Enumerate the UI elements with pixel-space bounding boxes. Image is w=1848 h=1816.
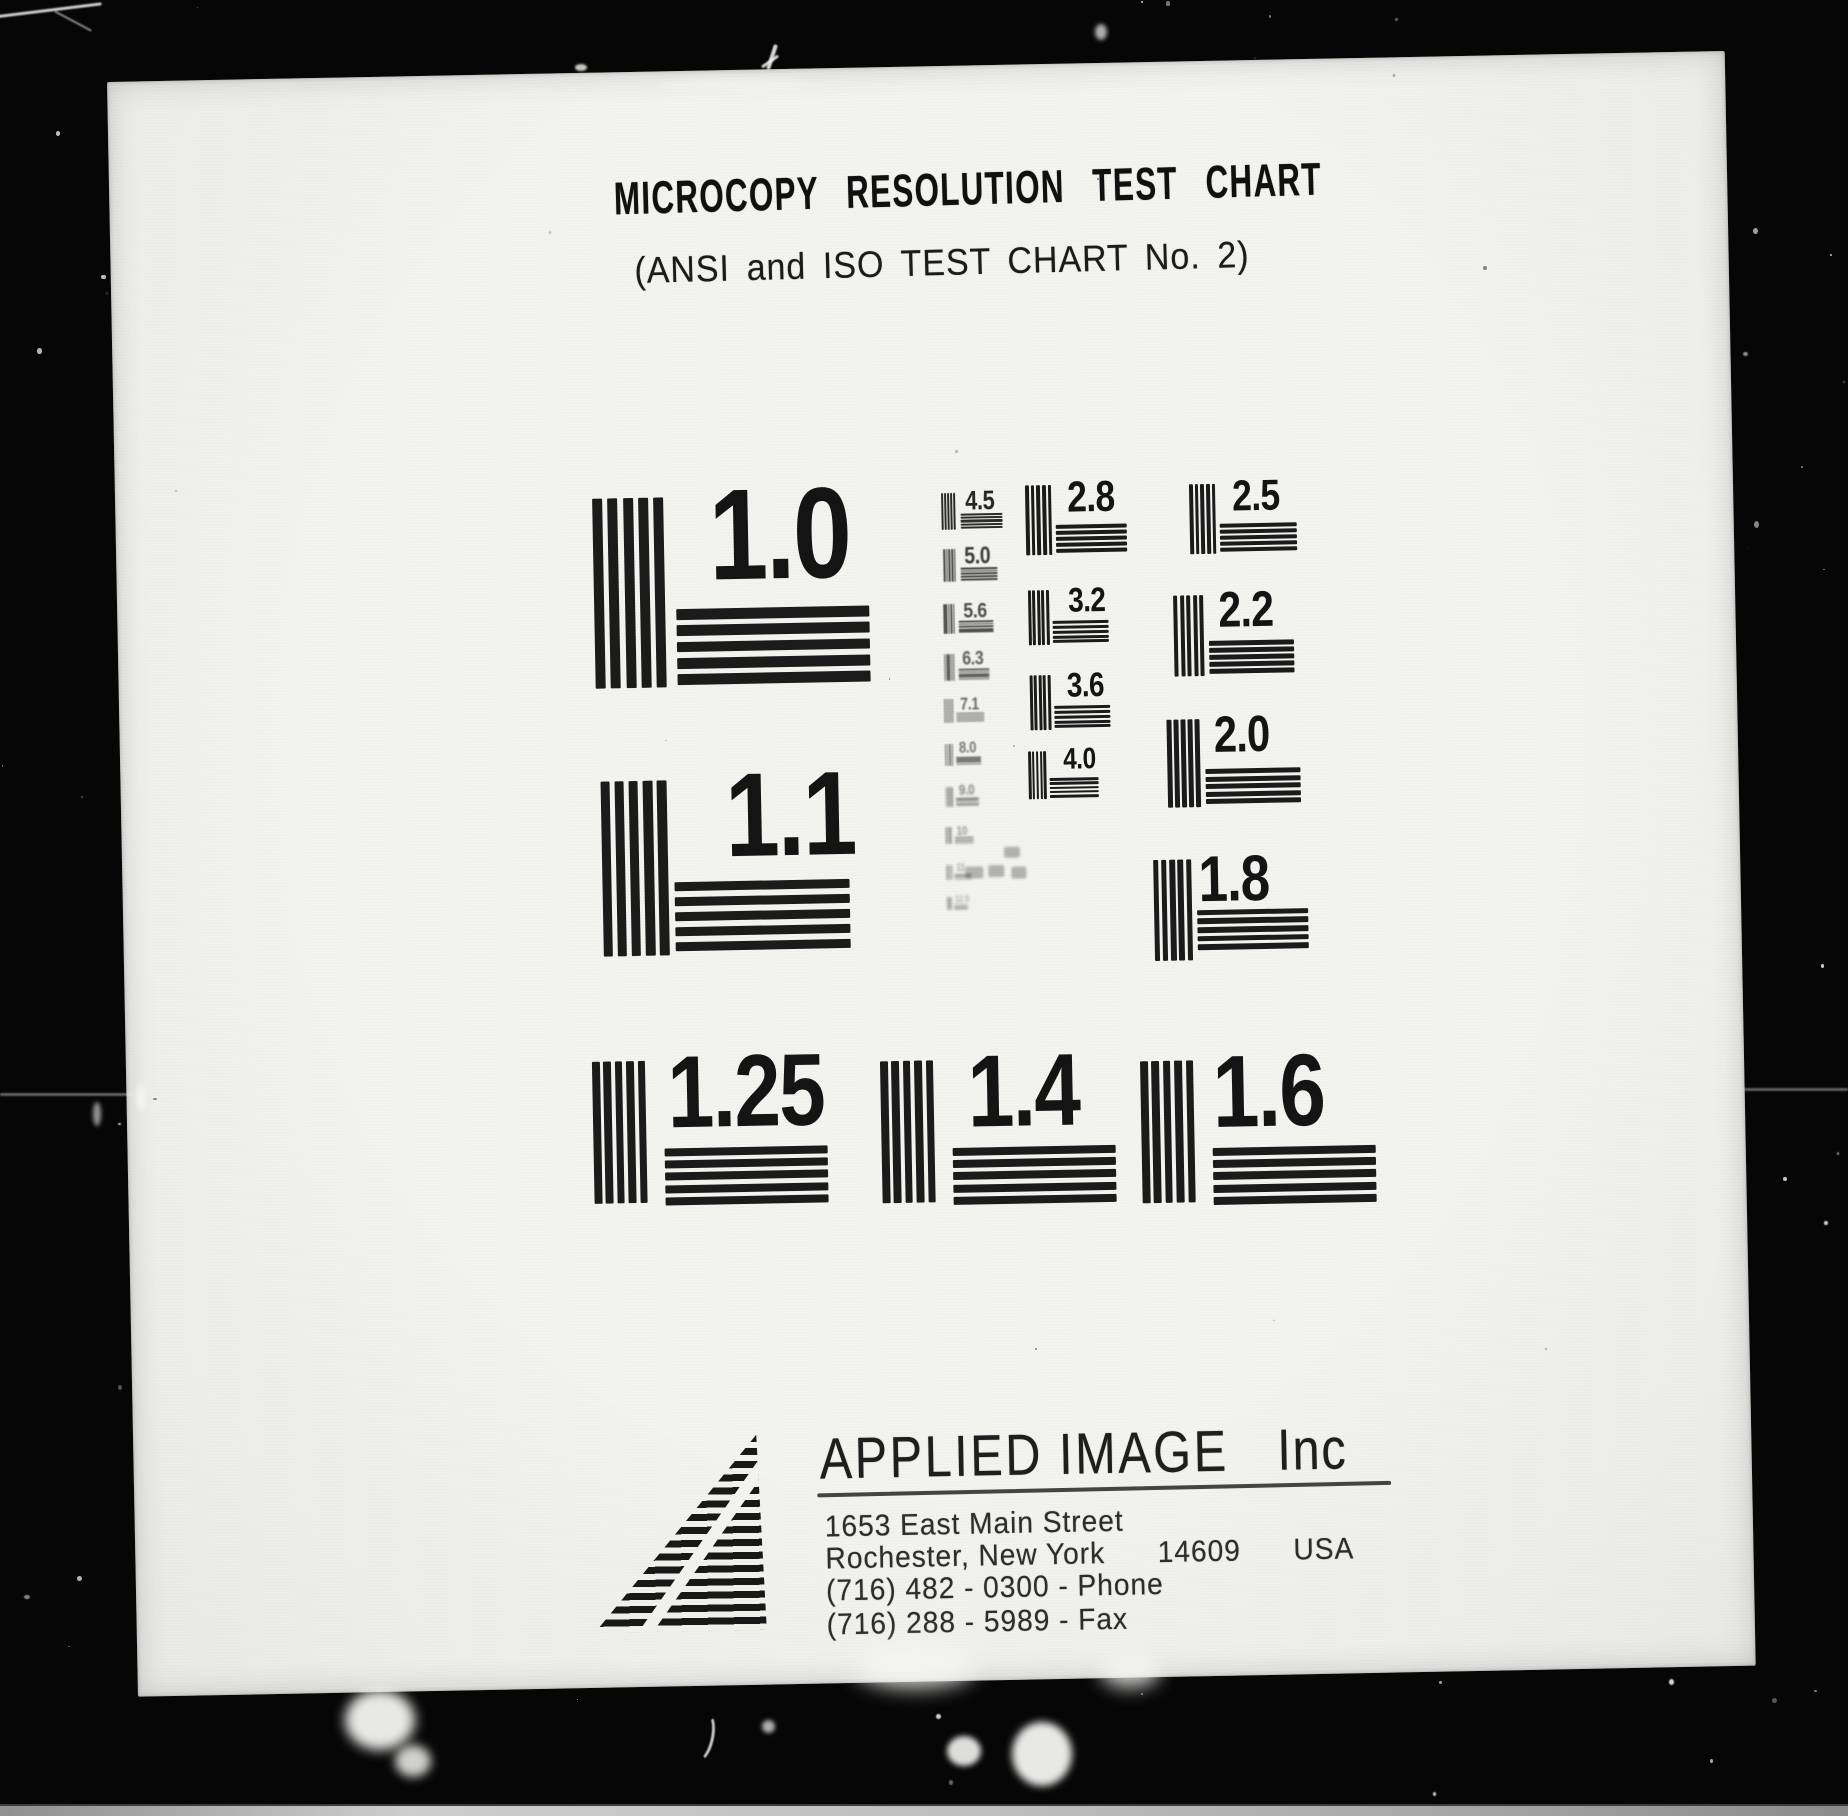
- horizontal-bars: [1052, 620, 1109, 643]
- vertical-bars: [946, 787, 954, 807]
- test-patch-1.1: 1.1: [601, 780, 670, 956]
- scan-blotch: [575, 64, 587, 71]
- vertical-bars: [1173, 595, 1205, 677]
- patch-value-label: 2.8: [1067, 476, 1115, 520]
- dust-speck: [56, 131, 60, 136]
- patch-value-label: 11: [956, 863, 965, 874]
- test-patch-11: 11: [946, 865, 952, 880]
- test-patch-2.0: 2.0: [1166, 719, 1201, 808]
- scratch-arc-artifact: [687, 1710, 719, 1763]
- dust-speck: [1824, 1221, 1827, 1225]
- patch-value-label: 7.1: [960, 695, 979, 713]
- dust-speck: [24, 1595, 29, 1599]
- dust-speck: [936, 1714, 941, 1719]
- scan-blotch: [93, 1102, 101, 1126]
- paper-speck: [955, 450, 958, 453]
- chart-title: MICROCOPY RESOLUTION TEST CHART: [447, 156, 1448, 221]
- vertical-bars: [880, 1060, 936, 1203]
- patch-value-label: 3.2: [1068, 582, 1106, 617]
- test-patch-9.0: 9.0: [946, 787, 954, 807]
- faint-micro-pattern: [1011, 866, 1026, 878]
- scan-blotch: [855, 1646, 975, 1688]
- vertical-bars: [1189, 484, 1217, 554]
- dust-speck: [1710, 1759, 1713, 1763]
- dust-speck: [949, 1780, 953, 1785]
- patch-value-label: 1.6: [1212, 1038, 1325, 1142]
- scratch-line-artifact: [0, 2, 102, 18]
- test-patch-1.8: 1.8: [1153, 859, 1193, 961]
- horizontal-bars: [956, 712, 984, 722]
- patch-value-label: 1.0: [707, 469, 850, 601]
- vertical-bars: [945, 827, 952, 844]
- patch-value-label: 3.6: [1066, 668, 1104, 703]
- scan-blotch: [947, 1736, 981, 1766]
- vertical-bars: [943, 549, 956, 582]
- dust-speck: [1269, 15, 1271, 17]
- dust-speck: [1801, 466, 1803, 468]
- company-suffix-text: Inc: [1277, 1416, 1348, 1482]
- dust-speck: [1669, 1679, 1674, 1685]
- dust-speck: [1843, 381, 1845, 384]
- test-patch-12.5: 12.5: [947, 897, 952, 910]
- resolution-patch-array: 1.01.11.251.41.64.55.05.66.37.18.09.0101…: [107, 51, 1725, 82]
- horizontal-bars: [956, 798, 979, 806]
- dust-speck: [1823, 569, 1825, 570]
- horizontal-bars: [1054, 705, 1111, 728]
- test-patch-3.6: 3.6: [1030, 675, 1052, 730]
- dust-speck: [37, 348, 41, 353]
- test-patch-1.25: 1.25: [592, 1061, 648, 1204]
- vertical-bars: [945, 744, 954, 766]
- scratch-line-artifact: [0, 1093, 132, 1096]
- test-patch-1.0: 1.0: [592, 497, 667, 688]
- patch-value-label: 12.5: [955, 895, 969, 905]
- test-patch-4.5: 4.5: [941, 493, 956, 530]
- horizontal-bars: [953, 904, 968, 909]
- test-patch-7.1: 7.1: [944, 699, 953, 723]
- dust-speck: [77, 1576, 82, 1581]
- applied-image-logo-triangle: [591, 1435, 767, 1633]
- faint-micro-pattern: [1004, 847, 1020, 858]
- faint-micro-pattern: [965, 866, 983, 878]
- dust-speck: [1141, 1693, 1143, 1695]
- vertical-bars: [1153, 859, 1193, 961]
- phone-line: (716) 482 - 0300 - Phone: [826, 1568, 1164, 1607]
- vertical-bars: [592, 1061, 648, 1204]
- patch-value-label: 6.3: [962, 650, 984, 670]
- test-patch-8.0: 8.0: [945, 744, 954, 766]
- horizontal-bars: [1198, 908, 1309, 950]
- patch-value-label: 8.0: [959, 740, 977, 756]
- scan-edge-strip: [0, 1804, 1848, 1816]
- vertical-bars: [947, 897, 952, 910]
- dust-speck: [101, 275, 105, 280]
- dust-speck: [1166, 1, 1170, 5]
- logo-diagonal-slash: [637, 1430, 790, 1642]
- horizontal-bars: [1220, 522, 1298, 551]
- scratch-line-artifact: [54, 10, 92, 31]
- dust-speck: [118, 1385, 122, 1390]
- horizontal-bars: [1056, 523, 1128, 552]
- vertical-bars: [943, 604, 955, 634]
- company-name: APPLIED IMAGEInc: [819, 1420, 1348, 1488]
- dust-speck: [81, 796, 82, 798]
- horizontal-bars: [676, 606, 871, 686]
- scanned-microfilm-frame: MICROCOPY RESOLUTION TEST CHART (ANSI an…: [0, 0, 1848, 1816]
- vertical-bars: [1025, 485, 1053, 555]
- patch-value-label: 9.0: [959, 784, 975, 799]
- test-patch-5.0: 5.0: [943, 549, 956, 582]
- faint-micro-pattern: [988, 865, 1004, 877]
- horizontal-bars: [960, 567, 998, 581]
- test-patch-1.4: 1.4: [880, 1060, 936, 1203]
- patch-value-label: 4.5: [965, 487, 995, 514]
- horizontal-bars: [674, 878, 850, 951]
- horizontal-bars: [960, 513, 1003, 529]
- dust-speck: [1743, 352, 1748, 356]
- dust-speck: [68, 1646, 70, 1648]
- scratch-line-artifact: [1744, 1088, 1848, 1091]
- dust-speck: [1395, 18, 1398, 22]
- dust-speck: [1141, 1, 1143, 4]
- dust-speck: [197, 7, 198, 8]
- patch-value-label: 10: [956, 824, 967, 836]
- patch-value-label: 1.25: [667, 1038, 825, 1143]
- dust-speck: [2, 765, 3, 767]
- horizontal-bars: [1209, 639, 1295, 673]
- vertical-bars: [941, 493, 956, 530]
- horizontal-bars: [958, 669, 989, 680]
- dust-speck: [1772, 1698, 1777, 1703]
- patch-value-label: 1.8: [1198, 846, 1270, 912]
- horizontal-bars: [956, 756, 981, 765]
- dust-speck: [1433, 1792, 1437, 1796]
- dust-speck: [1837, 1152, 1839, 1155]
- patch-value-label: 2.0: [1213, 708, 1270, 760]
- vertical-bars: [944, 654, 955, 681]
- dust-speck: [1814, 1690, 1816, 1692]
- paper-speck: [1483, 266, 1486, 270]
- test-chart-page: MICROCOPY RESOLUTION TEST CHART (ANSI an…: [107, 51, 1756, 1697]
- dust-speck: [1753, 228, 1758, 234]
- fax-line: (716) 288 - 5989 - Fax: [826, 1603, 1128, 1642]
- vertical-bars: [1028, 751, 1047, 799]
- chart-subtitle-text: (ANSI and ISO TEST CHART No. 2): [634, 236, 1250, 289]
- chart-title-text: MICROCOPY RESOLUTION TEST CHART: [613, 156, 1322, 222]
- horizontal-bars: [1049, 777, 1098, 797]
- dust-speck: [118, 1123, 121, 1126]
- horizontal-bars: [953, 1145, 1117, 1205]
- patch-value-label: 5.6: [963, 599, 987, 621]
- paper-speck: [1035, 1348, 1037, 1350]
- scan-blotch: [1012, 1722, 1072, 1786]
- patch-value-label: 4.0: [1063, 745, 1096, 775]
- test-patch-1.6: 1.6: [1140, 1060, 1196, 1203]
- patch-value-label: 2.5: [1231, 474, 1279, 518]
- horizontal-bars: [954, 836, 974, 843]
- patch-value-label: 1.1: [724, 754, 856, 875]
- company-name-text: APPLIED IMAGE: [819, 1419, 1229, 1492]
- dust-speck: [1783, 1177, 1787, 1182]
- vertical-bars: [601, 780, 670, 956]
- scan-blotch: [1095, 24, 1107, 40]
- patch-value-label: 2.2: [1218, 584, 1274, 635]
- paper-speck: [1031, 637, 1034, 640]
- test-patch-2.5: 2.5: [1189, 484, 1217, 554]
- test-patch-5.6: 5.6: [943, 604, 955, 634]
- scan-blotch: [136, 1084, 146, 1111]
- horizontal-bars: [959, 620, 994, 633]
- test-patch-2.2: 2.2: [1173, 595, 1205, 677]
- dust-speck: [1821, 964, 1825, 969]
- patch-value-label: 1.4: [966, 1038, 1079, 1142]
- paper-speck: [1273, 1320, 1275, 1321]
- vertical-bars: [946, 865, 952, 880]
- test-patch-4.0: 4.0: [1028, 751, 1047, 799]
- vertical-bars: [1140, 1060, 1196, 1203]
- scan-blotch: [345, 1690, 415, 1750]
- scan-blotch: [660, 78, 810, 90]
- dust-speck: [1830, 254, 1832, 256]
- horizontal-bars: [1213, 1145, 1377, 1205]
- horizontal-bars: [665, 1145, 829, 1205]
- vertical-bars: [592, 497, 667, 688]
- paper-speck: [1254, 57, 1256, 58]
- vertical-bars: [944, 699, 953, 723]
- vertical-bars: [1030, 675, 1052, 730]
- vertical-bars: [1166, 719, 1201, 808]
- scan-blotch: [762, 1720, 775, 1733]
- dust-speck: [1748, 548, 1749, 549]
- scan-blotch: [1100, 1652, 1160, 1688]
- patch-value-label: 5.0: [964, 544, 990, 568]
- scan-blotch: [395, 1745, 431, 1777]
- dust-speck: [1439, 1681, 1442, 1684]
- test-patch-2.8: 2.8: [1025, 485, 1053, 555]
- test-patch-6.3: 6.3: [944, 654, 955, 681]
- dust-speck: [577, 1699, 579, 1700]
- paper-speck: [106, 292, 109, 295]
- test-patch-10: 10: [945, 827, 952, 844]
- horizontal-bars: [1205, 767, 1301, 804]
- dust-speck: [1754, 521, 1759, 528]
- chart-subtitle: (ANSI and ISO TEST CHART No. 2): [441, 234, 1442, 290]
